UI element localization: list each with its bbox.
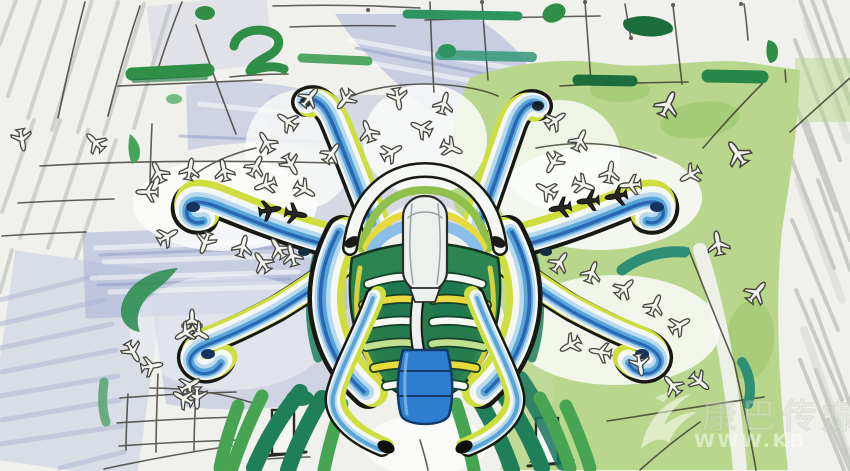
terminal-blue-tail	[398, 350, 452, 424]
terminal-capsule-atrium	[403, 196, 447, 302]
watermark-url-text: WWW.KB	[694, 430, 807, 452]
airport-concept-sketch: 康巴传媒 WWW.KB	[0, 0, 850, 471]
